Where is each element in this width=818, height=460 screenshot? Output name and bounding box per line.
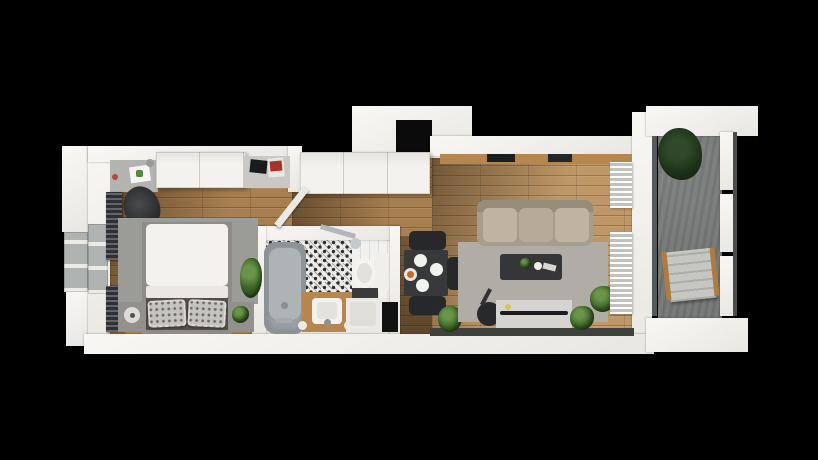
lounge-chair — [666, 248, 717, 303]
toilet-tank — [374, 252, 388, 292]
plate-1 — [414, 254, 427, 267]
tv-screen — [500, 311, 568, 315]
wall-bottom-main — [84, 334, 654, 354]
bathroom-counter-dark — [352, 288, 378, 298]
kitchen-cooktop — [487, 154, 515, 162]
balcony-glass-rail — [733, 132, 737, 316]
wall-right-living — [632, 112, 652, 352]
shower-head — [350, 238, 361, 249]
shaft-void — [396, 120, 432, 154]
sofa-cushion-1 — [483, 208, 517, 242]
bed-duvet-fold — [146, 286, 228, 298]
sideboard-laptop — [249, 159, 267, 174]
radiator-living-upper — [610, 162, 632, 208]
radiator-living-lower — [610, 232, 632, 314]
desk-paper-art — [136, 170, 143, 177]
nightstand-lamp-dot — [130, 313, 135, 318]
plate-3 — [416, 279, 429, 292]
coffee-table-cup — [534, 262, 542, 270]
sideboard-magazine-cover — [270, 160, 283, 171]
sofa-cushion-2 — [519, 208, 553, 242]
plate-food-item — [407, 271, 414, 278]
bathtub-faucet — [276, 318, 292, 323]
plate-2 — [430, 263, 443, 276]
balcony-door-glass — [652, 136, 657, 316]
desk-jar-1 — [146, 159, 154, 167]
plant-balcony — [658, 128, 702, 180]
dining-chair-north — [409, 231, 446, 250]
toilet-seat — [357, 263, 372, 283]
pillow-left — [147, 299, 186, 328]
vanity-knob-left — [298, 321, 307, 330]
kitchen-counter — [440, 154, 632, 164]
wall-balcony-bottom — [646, 318, 748, 352]
vanity-sink-basin — [317, 302, 337, 319]
washing-machine-lid — [350, 302, 376, 326]
window-left-outer — [64, 232, 88, 292]
balcony-glass-frame-bottom — [720, 256, 734, 316]
sofa-cushion-3 — [555, 208, 589, 242]
tv-stand-deco — [505, 304, 511, 310]
pillow-right — [187, 299, 226, 328]
wardrobe — [156, 152, 246, 188]
desk-knob-red — [112, 174, 118, 180]
vanity-faucet — [324, 319, 331, 326]
balcony-glass-frame-top — [720, 132, 734, 190]
glazing-bottom-living — [430, 328, 634, 336]
bathtub-inner — [269, 248, 301, 320]
entry-closet — [300, 152, 430, 194]
window-left-inner — [88, 224, 108, 294]
apartment-floor-plan-canvas — [0, 0, 818, 460]
wall-balcony-top — [646, 106, 758, 136]
kitchen-sink — [548, 154, 572, 162]
wall-outer-pillar-top-left — [62, 146, 90, 232]
bathtub-drain — [281, 302, 288, 309]
balcony-glass-frame-mid — [720, 194, 734, 252]
doorway-dark-opening — [382, 302, 398, 332]
wall-top-kitchen — [430, 136, 634, 156]
bed-duvet — [146, 224, 228, 286]
